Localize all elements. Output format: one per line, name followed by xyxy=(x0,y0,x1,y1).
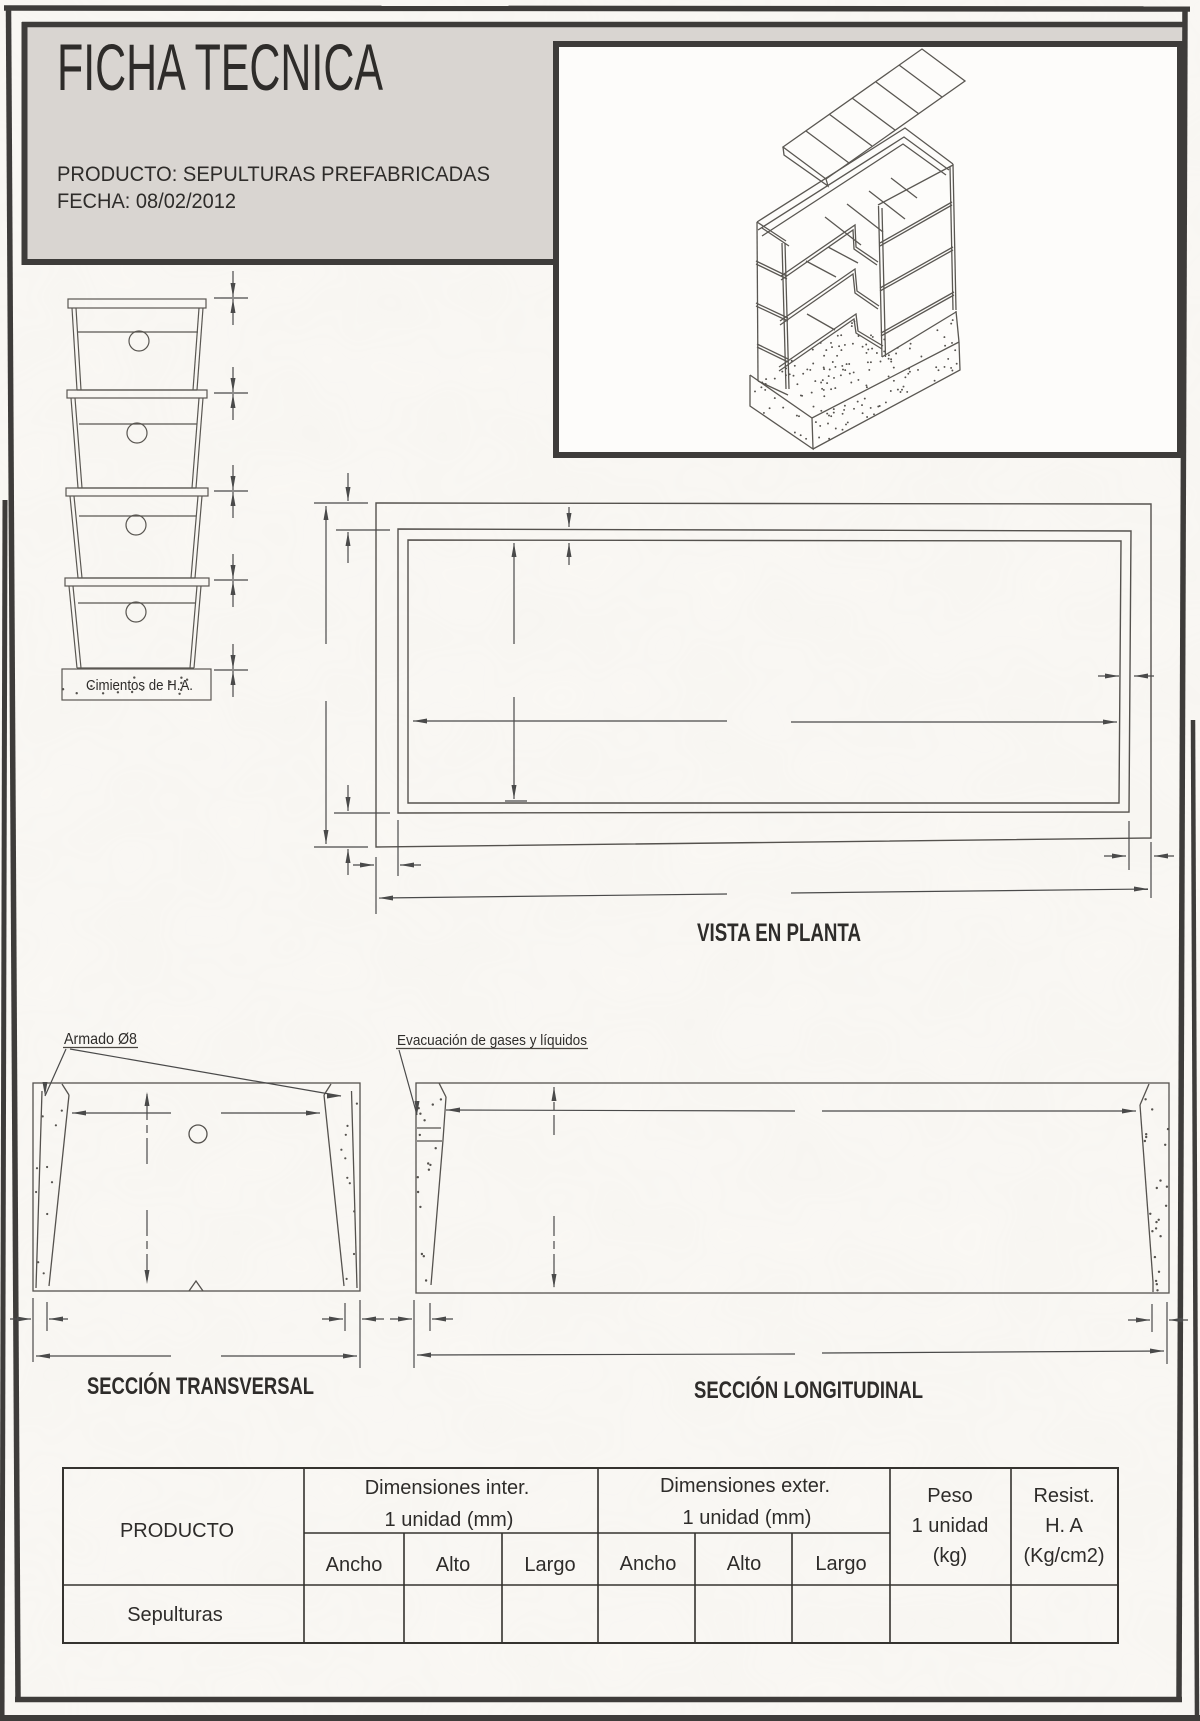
svg-text:1 unidad (mm): 1 unidad (mm) xyxy=(683,1507,812,1529)
svg-text:1 unidad: 1 unidad xyxy=(912,1515,989,1537)
svg-text:SECCIÓN TRANSVERSAL: SECCIÓN TRANSVERSAL xyxy=(87,1372,314,1400)
svg-text:Sepulturas: Sepulturas xyxy=(127,1604,223,1626)
svg-text:Ancho: Ancho xyxy=(326,1554,383,1576)
svg-text:SECCIÓN LONGITUDINAL: SECCIÓN LONGITUDINAL xyxy=(694,1376,923,1404)
svg-text:Ancho: Ancho xyxy=(620,1553,677,1575)
svg-text:1 unidad (mm): 1 unidad (mm) xyxy=(385,1509,514,1531)
svg-text:PRODUCTO: PRODUCTO xyxy=(120,1520,234,1542)
svg-text:Dimensiones exter.: Dimensiones exter. xyxy=(660,1475,830,1497)
svg-text:Resist.: Resist. xyxy=(1033,1485,1094,1507)
svg-text:H. A: H. A xyxy=(1045,1515,1083,1537)
svg-text:Largo: Largo xyxy=(815,1553,866,1575)
svg-text:Armado Ø8: Armado Ø8 xyxy=(64,1031,137,1048)
svg-text:Peso: Peso xyxy=(927,1485,973,1507)
svg-text:VISTA EN PLANTA: VISTA EN PLANTA xyxy=(697,919,861,947)
svg-text:Cimientos de H.A.: Cimientos de H.A. xyxy=(86,678,193,694)
svg-text:(Kg/cm2): (Kg/cm2) xyxy=(1023,1545,1104,1567)
svg-text:Dimensiones inter.: Dimensiones inter. xyxy=(365,1477,530,1499)
svg-text:FECHA: 08/02/2012: FECHA: 08/02/2012 xyxy=(57,189,236,213)
svg-text:Alto: Alto xyxy=(436,1554,470,1576)
svg-text:FICHA TECNICA: FICHA TECNICA xyxy=(57,30,383,104)
svg-text:(kg): (kg) xyxy=(933,1545,967,1567)
svg-text:Alto: Alto xyxy=(727,1553,761,1575)
svg-text:PRODUCTO: SEPULTURAS PREFABRIC: PRODUCTO: SEPULTURAS PREFABRICADAS xyxy=(57,162,490,186)
svg-text:Largo: Largo xyxy=(524,1554,575,1576)
svg-text:Evacuación de gases y líquidos: Evacuación de gases y líquidos xyxy=(397,1032,587,1049)
